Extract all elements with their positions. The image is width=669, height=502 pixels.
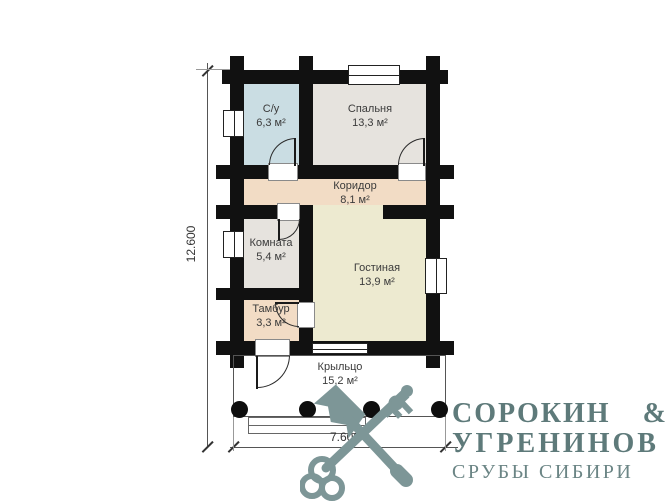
wall-interior-v2 bbox=[299, 205, 313, 355]
room-area: 3,3 м² bbox=[241, 317, 301, 331]
room-name: Комната bbox=[241, 237, 301, 251]
room-label-bathroom: С/у 6,3 м² bbox=[241, 103, 301, 131]
floor-plan-page: 12.600 7.600 С/у 6,3 м² Спальня 13,3 м² … bbox=[0, 0, 669, 502]
crossed-axe-and-key-icon bbox=[300, 382, 438, 501]
room-name: С/у bbox=[241, 103, 301, 117]
dimension-line-vertical bbox=[207, 63, 208, 448]
extension-line bbox=[445, 417, 446, 451]
porch-column bbox=[231, 401, 248, 418]
wall-interior-v1 bbox=[299, 70, 313, 179]
logo-name-part1: СОРОКИН bbox=[452, 400, 611, 429]
log-end-stub bbox=[230, 56, 244, 70]
door-opening-bedroom bbox=[398, 163, 426, 181]
room-label-komnata: Комната 5,4 м² bbox=[241, 237, 301, 265]
room-label-corridor: Коридор 8,1 м² bbox=[315, 180, 395, 208]
window-living-bottom bbox=[312, 343, 368, 354]
log-end-stub bbox=[299, 56, 313, 70]
room-label-livingroom: Гостиная 13,9 м² bbox=[337, 262, 417, 290]
window-living-right bbox=[425, 258, 447, 294]
room-area: 13,3 м² bbox=[330, 117, 410, 131]
extension-line bbox=[233, 417, 234, 451]
door-leaf bbox=[294, 138, 296, 166]
logo-tagline: СРУБЫ СИБИРИ bbox=[452, 461, 668, 484]
room-name: Коридор bbox=[315, 180, 395, 194]
room-name: Спальня bbox=[330, 103, 410, 117]
room-area: 13,9 м² bbox=[337, 276, 417, 290]
room-name: Гостиная bbox=[337, 262, 417, 276]
logo-line-1: СОРОКИН & bbox=[452, 400, 668, 429]
logo-ampersand: & bbox=[643, 400, 668, 429]
room-name: Тамбур bbox=[241, 303, 301, 317]
company-logo-text: СОРОКИН & УГРЕНИНОВ СРУБЫ СИБИРИ bbox=[452, 400, 668, 484]
wall-interior-b1 bbox=[216, 205, 278, 219]
room-label-vestibule: Тамбур 3,3 м² bbox=[241, 303, 301, 331]
dimension-value-vertical: 12.600 bbox=[184, 213, 198, 275]
logo-line-2: УГРЕНИНОВ bbox=[452, 429, 668, 458]
room-name: Крыльцо bbox=[305, 361, 375, 375]
room-area: 5,4 м² bbox=[241, 251, 301, 265]
log-end-stub bbox=[426, 56, 440, 70]
wall-outer-top bbox=[222, 70, 448, 84]
window-bedroom-top bbox=[348, 65, 400, 85]
door-leaf bbox=[423, 138, 425, 166]
room-area: 6,3 м² bbox=[241, 117, 301, 131]
room-label-bedroom: Спальня 13,3 м² bbox=[330, 103, 410, 131]
room-area: 8,1 м² bbox=[315, 194, 395, 208]
extension-line bbox=[196, 69, 230, 70]
